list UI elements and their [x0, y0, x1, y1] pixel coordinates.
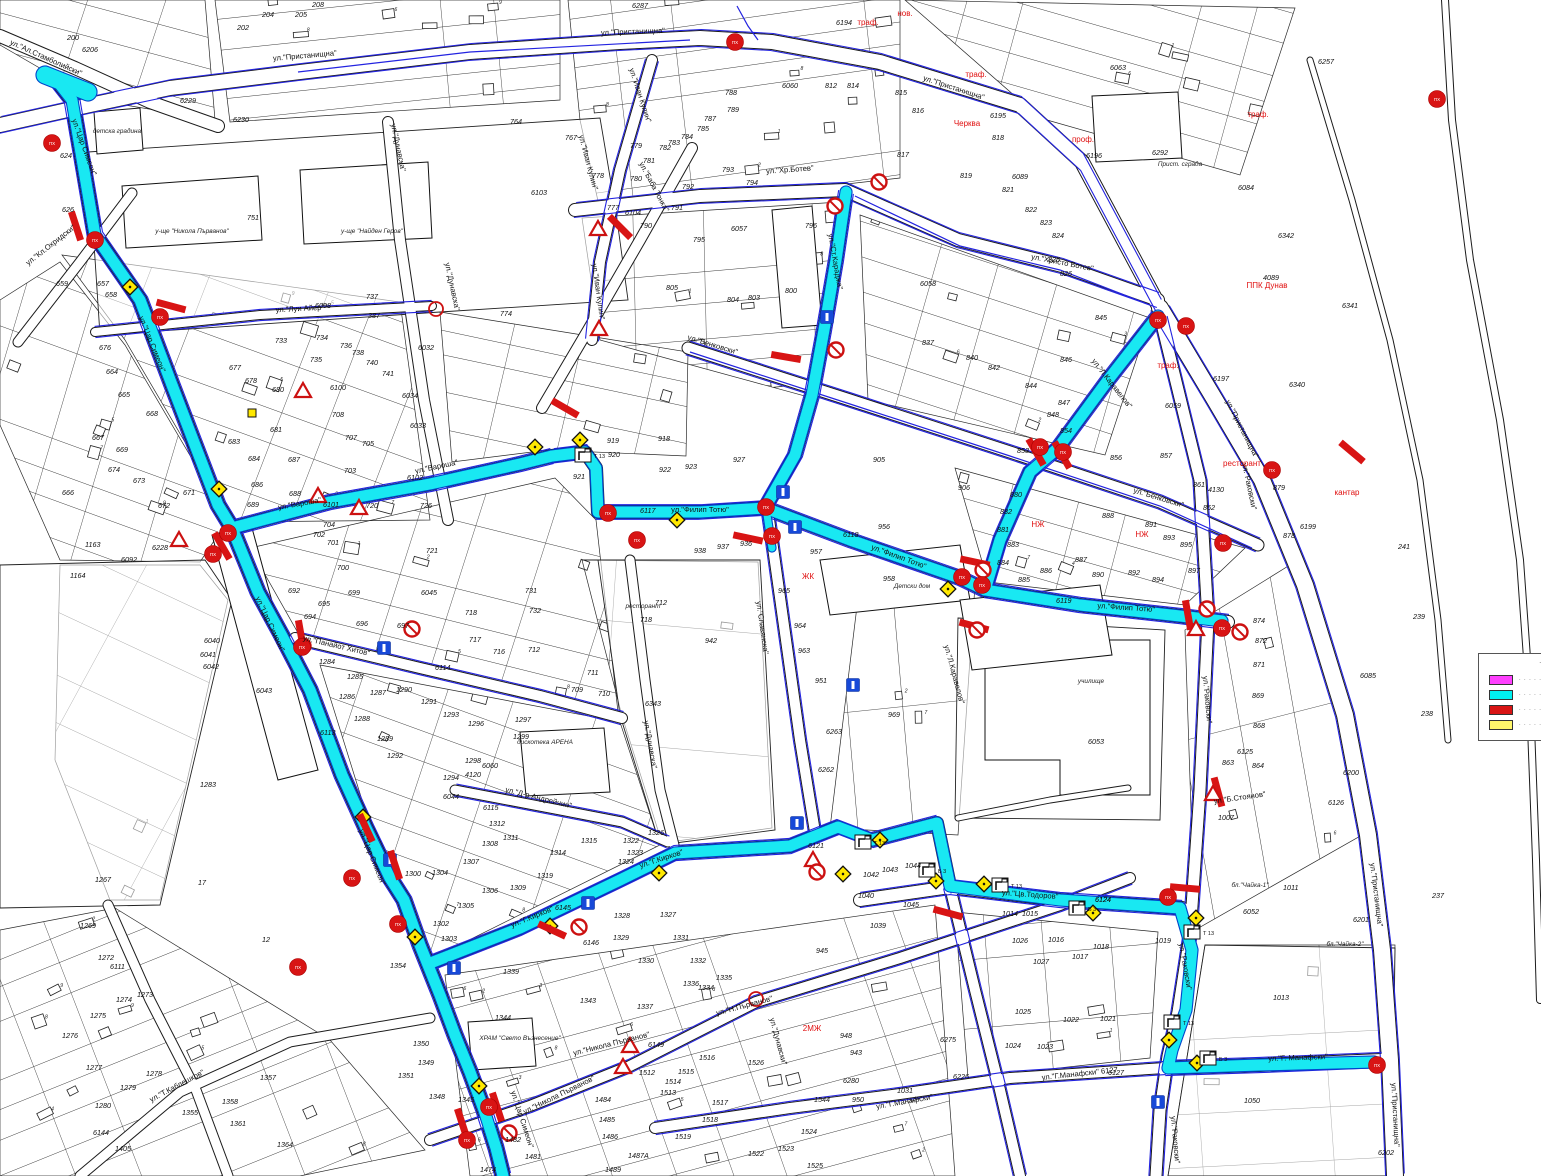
parcel-number: 937 [717, 542, 730, 551]
parcel-number: 677 [229, 363, 242, 372]
map-legend: — · · · · · · · · · · · · · · · · · · · … [1478, 653, 1541, 741]
svg-text:ПХ: ПХ [605, 511, 611, 516]
parcel-number: 767 [565, 133, 578, 142]
parcel-number: 1349 [418, 1058, 434, 1067]
hydrant-icon: ПХ [205, 546, 222, 563]
svg-text:ПХ: ПХ [486, 1105, 492, 1110]
parcel-number: 895 [1180, 540, 1193, 549]
parcel-number: 1015 [1022, 909, 1039, 918]
parcel-number: 796 [805, 221, 817, 230]
parcel-number: 885 [1018, 575, 1031, 584]
parcel-number: 787 [704, 114, 717, 123]
parcel-number: 777 [607, 203, 620, 212]
parcel-number: 863 [1222, 758, 1234, 767]
parcel-number: 920 [608, 450, 620, 459]
parcel-number: 1300 [405, 869, 421, 878]
parcel-number: 1309 [510, 883, 526, 892]
parcel-number: 1517 [712, 1098, 729, 1107]
parcel-number: 1336 [683, 979, 699, 988]
parcel-number: 680 [272, 385, 284, 394]
svg-text:9: 9 [60, 983, 63, 989]
svg-text:8: 8 [555, 1045, 558, 1051]
parcel-number: 822 [1025, 205, 1037, 214]
svg-text:Т 13: Т 13 [1203, 931, 1214, 937]
svg-text:ПХ: ПХ [299, 645, 305, 650]
parcel-number: 1043 [882, 865, 898, 874]
parcel-number: 848 [1047, 410, 1059, 419]
parcel-number: 819 [960, 171, 972, 180]
parcel-number: 6040 [204, 636, 220, 645]
parcel-number: 718 [640, 615, 652, 624]
parcel-number: 1307 [463, 857, 480, 866]
parcel-number: 800 [785, 286, 797, 295]
parcel-number: 699 [348, 588, 360, 597]
parcel-number: 1289 [377, 734, 393, 743]
parcel-number: 6230 [233, 115, 249, 124]
parcel-number: 6058 [920, 279, 936, 288]
parcel-number: 793 [722, 165, 734, 174]
parcel-number: 1267 [95, 875, 112, 884]
no-entry-icon [829, 343, 844, 358]
parcel-number: 666 [62, 488, 74, 497]
parcel-number: 708 [332, 410, 344, 419]
parcel-number: 696 [356, 619, 368, 628]
place-label: бл."Чайка-2" [1326, 940, 1364, 948]
svg-text:ПХ: ПХ [1060, 450, 1066, 455]
parcel-number: 921 [573, 472, 585, 481]
svg-text:ПХ: ПХ [157, 315, 163, 320]
parcel-number: 717 [469, 635, 482, 644]
parcel-number: 6084 [1238, 183, 1254, 192]
parcel-number: 665 [118, 390, 131, 399]
red-annotation: ЖК [802, 572, 814, 581]
parcel-number: 1364 [277, 1140, 293, 1149]
hydrant-icon: ПХ [1055, 444, 1072, 461]
parcel-number: 1516 [699, 1053, 715, 1062]
parcel-number: 1306 [482, 886, 498, 895]
parcel-number: 927 [733, 455, 746, 464]
no-entry-icon [872, 175, 887, 190]
svg-text:7: 7 [391, 500, 394, 506]
parcel-number: 703 [344, 466, 356, 475]
svg-text:ПХ: ПХ [395, 922, 401, 927]
parcel-number: 887 [1075, 555, 1088, 564]
parcel-number: 842 [988, 363, 1000, 372]
parcel-number: 733 [275, 336, 287, 345]
legend-item: · · · · · · · · [1489, 687, 1541, 702]
info-sign-icon [582, 897, 595, 910]
parcel-number: 6149 [648, 1040, 664, 1049]
place-label: ХРАМ "Свето Възнесение" [478, 1035, 561, 1042]
junction-diamond-icon [835, 866, 851, 882]
street-name: ул."Хр.Ботев" [766, 163, 814, 175]
parcel-number: 6124 [1095, 895, 1111, 904]
parcel-number: 880 [1010, 490, 1022, 499]
info-sign-icon [789, 521, 802, 534]
parcel-number: 906 [958, 483, 970, 492]
svg-text:5: 5 [280, 377, 283, 383]
parcel-number: 695 [318, 599, 331, 608]
parcel-number: 239 [1412, 612, 1425, 621]
parcel-number: 815 [895, 88, 908, 97]
svg-text:ПХ: ПХ [1434, 97, 1440, 102]
no-entry-icon [976, 563, 991, 578]
parcel-number: 864 [1252, 761, 1264, 770]
parcel-number: 923 [685, 462, 697, 471]
legend-swatch-cyan-icon [1489, 690, 1513, 700]
parcel-number: 780 [630, 174, 642, 183]
parcel-number: 1512 [639, 1068, 655, 1077]
parcel-number: 718 [465, 608, 477, 617]
parcel-number: 814 [847, 81, 859, 90]
parcel-number: 790 [640, 221, 652, 230]
parcel-number: 844 [1025, 381, 1037, 390]
parcel-number: 783 [668, 138, 680, 147]
svg-text:ПХ: ПХ [1269, 468, 1275, 473]
street-name: ул."Никола Първанов" [522, 1073, 597, 1116]
parcel-number: 705 [362, 439, 375, 448]
parcel-number: 1042 [863, 870, 879, 879]
street-name: ул."Кл.Охридски" [24, 223, 77, 267]
svg-text:7: 7 [100, 446, 103, 452]
map-stage: 9868281511619158574184723647217852782368… [0, 0, 1541, 1176]
parcel-number: 945 [816, 946, 829, 955]
parcel-number: 1350 [413, 1039, 429, 1048]
parcel-number: 664 [106, 367, 118, 376]
parcel-number: 751 [247, 213, 259, 222]
parcel-number: 6201 [1353, 915, 1369, 924]
parcel-number: 1273 [137, 990, 153, 999]
svg-text:6: 6 [1334, 831, 1337, 837]
parcel-number: 1298 [465, 756, 481, 765]
parcel-number: 823 [1040, 218, 1052, 227]
parcel-number: 1024 [1005, 1041, 1021, 1050]
parcel-number: 1286 [339, 692, 355, 701]
parcel-number: 624 [60, 151, 72, 160]
parcel-number: 1524 [801, 1127, 817, 1136]
no-entry-icon [828, 199, 843, 214]
parcel-number: 804 [727, 295, 739, 304]
parcel-number: 6342 [1278, 231, 1294, 240]
parcel-number: 1355 [182, 1108, 199, 1117]
svg-text:1: 1 [1172, 43, 1175, 49]
parcel-number: 387 [368, 311, 381, 320]
parcel-number: 1275 [90, 1011, 107, 1020]
parcel-number: 784 [681, 132, 693, 141]
place-label: ресторант [625, 603, 662, 610]
parcel-number: 6115 [483, 803, 499, 812]
parcel-number: 6206 [82, 45, 98, 54]
svg-text:6: 6 [630, 1022, 633, 1028]
parcel-number: 689 [247, 500, 259, 509]
svg-text:2: 2 [481, 989, 485, 995]
red-annotation: Черква [954, 119, 981, 128]
parcel-number: 1302 [433, 919, 449, 928]
parcel-number: 6041 [200, 650, 216, 659]
parcel-number: 1486 [602, 1132, 618, 1141]
parcel-number: 1518 [702, 1115, 718, 1124]
parcel-number: 1361 [230, 1119, 246, 1128]
parcel-number: 872 [1255, 636, 1267, 645]
parcel-number: 1304 [432, 868, 448, 877]
svg-text:ПХ: ПХ [979, 583, 985, 588]
parcel-number: 892 [1128, 568, 1140, 577]
legend-item: · · · · · · · · [1489, 672, 1541, 687]
parcel-number: 1326 [648, 828, 664, 837]
parcel-number: 1303 [441, 934, 457, 943]
parcel-number: 919 [607, 436, 619, 445]
parcel-number: 6200 [1343, 768, 1359, 777]
parcel-number: 943 [850, 1048, 862, 1057]
svg-text:3: 3 [539, 983, 542, 989]
parcel-number: 803 [748, 293, 760, 302]
red-annotation: траф. [1247, 110, 1268, 119]
info-sign-icon [777, 486, 790, 499]
parcel-number: 204 [261, 10, 274, 19]
parcel-number: 871 [1253, 660, 1265, 669]
hydrant-icon: ПХ [481, 1099, 498, 1116]
parcel-number: 1474 [480, 1165, 496, 1174]
legend-item: · · · · · · · · [1489, 717, 1541, 732]
parcel-number: 1305 [458, 901, 475, 910]
parcel-number: 738 [352, 348, 364, 357]
parcel-number: 1358 [222, 1097, 238, 1106]
svg-text:9: 9 [499, 0, 502, 6]
hydrant-icon: ПХ [1214, 620, 1231, 637]
small-square-icon [248, 409, 256, 417]
parcel-number: 918 [658, 434, 670, 443]
svg-text:ПХ: ПХ [959, 575, 965, 580]
parcel-number: 774 [500, 309, 512, 318]
parcel-number: 6195 [990, 111, 1007, 120]
parcel-number: 795 [693, 235, 706, 244]
svg-text:ПХ: ПХ [1155, 318, 1161, 323]
parcel-number: 854 [1060, 426, 1072, 435]
parcel-number: 1515 [678, 1067, 695, 1076]
parcel-number: 702 [313, 530, 325, 539]
parcel-number: 709 [571, 685, 583, 694]
parcel-number: 956 [878, 522, 890, 531]
info-sign-icon [791, 817, 804, 830]
hydrant-icon: ПХ [727, 34, 744, 51]
parcel-number: 1337 [637, 1002, 654, 1011]
svg-text:ПХ: ПХ [1037, 445, 1043, 450]
parcel-number: 704 [323, 520, 335, 529]
parcel-number: 673 [133, 476, 145, 485]
parcel-number: 1354 [390, 961, 406, 970]
svg-text:ПХ: ПХ [295, 965, 301, 970]
hydrant-icon: ПХ [290, 959, 307, 976]
parcel-number: 1322 [623, 836, 639, 845]
parcel-number: 737 [366, 292, 379, 301]
parcel-number: 794 [746, 178, 758, 187]
svg-text:1: 1 [358, 541, 361, 547]
parcel-number: 6092 [121, 555, 137, 564]
svg-text:Т 13: Т 13 [594, 454, 605, 460]
parcel-number: 890 [1092, 570, 1104, 579]
parcel-number: 1481 [525, 1152, 541, 1161]
parcel-number: 6125 [1237, 747, 1254, 756]
parcel-number: 6033 [410, 421, 426, 430]
parcel-number: 6113 [320, 728, 335, 737]
parcel-number: 1330 [638, 956, 654, 965]
hydrant-icon: ПХ [974, 577, 991, 594]
red-annotation: НЖ [1031, 520, 1045, 529]
place-label: у-ще "Никола Първанов" [154, 228, 229, 235]
red-annotation: ресторант [1223, 459, 1261, 468]
svg-text:2: 2 [757, 163, 761, 169]
parcel-number: 1327 [660, 910, 677, 919]
svg-text:Б 3: Б 3 [1088, 907, 1096, 913]
hydrant-icon: ПХ [87, 232, 104, 249]
parcel-number: 950 [852, 1095, 864, 1104]
hydrant-icon: ПХ [459, 1132, 476, 1149]
no-entry-icon [810, 865, 825, 880]
parcel-number: 692 [288, 586, 300, 595]
parcel-number: 1514 [665, 1077, 681, 1086]
parcel-number: 879 [1273, 483, 1285, 492]
no-entry-icon [1200, 602, 1215, 617]
svg-text:8: 8 [820, 252, 823, 258]
parcel-number: 1324 [618, 857, 634, 866]
hydrant-icon: ПХ [1032, 439, 1049, 456]
parcel-number: 6060 [482, 761, 498, 770]
parcel-number: 1544 [814, 1095, 830, 1104]
parcel-number: 1311 [503, 833, 518, 842]
parcel-number: 1277 [86, 1063, 103, 1072]
parcel-number: 791 [671, 203, 683, 212]
parcel-number: 1522 [748, 1149, 764, 1158]
parcel-number: 6126 [1328, 798, 1344, 807]
svg-text:2: 2 [904, 688, 908, 694]
parcel-number: 1405 [115, 1144, 132, 1153]
parcel-number: 6280 [843, 1076, 859, 1085]
parcel-number: 1335 [716, 973, 733, 982]
hydrant-icon: ПХ [152, 309, 169, 326]
parcel-number: 701 [327, 538, 339, 547]
parcel-number: 1288 [354, 714, 370, 723]
parcel-number: 6202 [1378, 1148, 1394, 1157]
svg-text:8: 8 [606, 102, 609, 108]
svg-text:ПХ: ПХ [210, 552, 216, 557]
parcel-number: 6057 [731, 224, 748, 233]
parcel-number: 6052 [1243, 907, 1259, 916]
hydrant-icon: ПХ [44, 135, 61, 152]
city-map: 9868281511619158574184723647217852782368… [0, 0, 1541, 1176]
parcel-number: 1017 [1072, 952, 1089, 961]
parcel-number: 720 [366, 501, 378, 510]
parcel-number: 862 [1203, 503, 1215, 512]
parcel-number: 1045 [903, 900, 920, 909]
parcel-number: 6229 [180, 96, 196, 105]
parcel-number: 6228 [152, 543, 168, 552]
hydrant-box-icon: Т 13 [575, 448, 605, 462]
place-label: дискотека АРЕНА [517, 738, 573, 746]
parcel-number: 716 [493, 647, 505, 656]
svg-text:8: 8 [307, 28, 310, 34]
parcel-number: 882 [1000, 507, 1012, 516]
place-label: училище [1077, 678, 1105, 685]
parcel-number: 1308 [482, 839, 498, 848]
parcel-number: 1280 [95, 1101, 111, 1110]
parcel-number: 1329 [613, 933, 629, 942]
parcel-number: 6118 [843, 530, 858, 539]
parcel-number: 6287 [632, 1, 649, 10]
parcel-number: 845 [1095, 313, 1108, 322]
parcel-number: 710 [598, 689, 610, 698]
svg-text:2: 2 [921, 1147, 925, 1153]
parcel-number: 736 [340, 341, 352, 350]
parcel-number: 1018 [1093, 942, 1109, 951]
svg-text:ПХ: ПХ [1219, 626, 1225, 631]
parcel-number: 626 [62, 205, 74, 214]
svg-text:7: 7 [924, 710, 927, 716]
info-sign-icon [821, 311, 834, 324]
parcel-number: 1525 [807, 1161, 824, 1170]
svg-text:8: 8 [363, 1142, 366, 1148]
parcel-number: 922 [659, 465, 671, 474]
parcel-number: 707 [345, 433, 358, 442]
svg-text:ПХ: ПХ [634, 538, 640, 543]
hydrant-icon: ПХ [1264, 462, 1281, 479]
parcel-number: 1482 [505, 1135, 521, 1144]
parcel-number: 1026 [1012, 936, 1028, 945]
parcel-number: 857 [1160, 451, 1173, 460]
valve-bar-icon [1338, 440, 1365, 465]
parcel-number: 1274 [116, 995, 132, 1004]
hydrant-icon: ПХ [1150, 312, 1167, 329]
parcel-number: 905 [873, 455, 886, 464]
parcel-number: 1293 [443, 710, 459, 719]
parcel-number: 1287 [370, 688, 387, 697]
legend-item: · · · · · · · · [1489, 702, 1541, 717]
parcel-number: 883 [1007, 540, 1019, 549]
parcel-number: 1283 [200, 780, 216, 789]
parcel-number: 6119 [1056, 596, 1071, 605]
parcel-number: 824 [1052, 231, 1064, 240]
parcel-number: 6117 [640, 506, 656, 515]
parcel-number: 6103 [531, 188, 547, 197]
parcel-number: 1284 [319, 657, 335, 666]
parcel-number: 789 [727, 105, 739, 114]
svg-text:6: 6 [394, 7, 397, 13]
parcel-number: 1163 [85, 540, 100, 549]
svg-text:ПХ: ПХ [49, 141, 55, 146]
svg-text:ПХ: ПХ [349, 876, 355, 881]
parcel-number: 671 [183, 488, 195, 497]
parcel-number: 6275 [940, 1035, 957, 1044]
parcel-number: 969 [888, 710, 900, 719]
parcel-number: 1007 [1218, 813, 1235, 822]
parcel-number: 6340 [1289, 380, 1305, 389]
place-label: детска градина [93, 127, 142, 135]
parcel-number: 888 [1102, 511, 1114, 520]
parcel-number: 1290 [396, 685, 412, 694]
parcel-number: 668 [146, 409, 158, 418]
hydrant-icon: ПХ [1369, 1057, 1386, 1074]
parcel-number: 938 [694, 546, 706, 555]
red-annotation: 2МЖ [803, 1024, 822, 1033]
parcel-number: 6196 [1086, 151, 1102, 160]
svg-text:1: 1 [1110, 1028, 1113, 1034]
red-annotation: траф. [1157, 361, 1178, 370]
parcel-number: 1021 [1100, 1014, 1116, 1023]
svg-text:ПХ: ПХ [1374, 1063, 1380, 1068]
parcel-number: 1484 [595, 1095, 611, 1104]
parcel-number: 726 [420, 501, 432, 510]
parcel-number: 6121 [808, 841, 824, 850]
parcel-number: 1014 [1002, 909, 1018, 918]
